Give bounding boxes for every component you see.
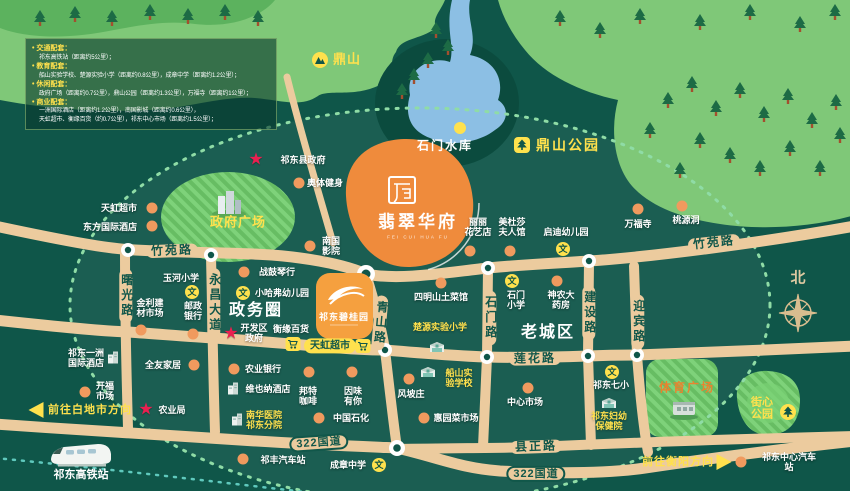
project-pinyin: FEI CUI HUA FU: [387, 234, 449, 239]
chuyuan-primary-school-school-icon: [428, 340, 446, 354]
legend-box: 交通配套：祁东高铁站（距离约5公里）；教育配套：船山实验学校、楚源实验小学（距离…: [25, 38, 277, 130]
nanhua-hospital: 南华医院 祁东分院: [246, 410, 282, 430]
aoti-fitness-dot-icon: [294, 178, 305, 189]
zhengfu-square: 政府广场: [210, 216, 266, 231]
qifeng-bus-station-dot-icon: [238, 454, 249, 465]
harvard-kindergarten: 小哈弗幼儿园: [255, 288, 309, 298]
fengpo-village: 风坡庄: [397, 389, 424, 399]
nanguo-cinema-dot-icon: [305, 241, 316, 252]
lianhua-road-label: 莲花路: [509, 352, 561, 366]
huiyuan-food-market: 惠园菜市场: [433, 413, 478, 423]
fuyou-health-hospital-school-icon: [600, 396, 618, 410]
shimen-reservoir-ydot-icon: [454, 122, 466, 134]
vienna-hotel-bldg-icon: [227, 382, 239, 395]
dingshan-hill-mountain-icon: [312, 52, 328, 68]
fengpo-village-dot-icon: [404, 374, 415, 385]
qidi-kindergarten: 启迪幼儿园: [543, 227, 588, 237]
shimen-primary-school-wen-icon: 文: [505, 274, 519, 288]
wanfu-temple-dot-icon: [633, 204, 644, 215]
chuyuan-primary-school: 楚源实验小学: [413, 322, 467, 332]
hengyuan-store: 衡缘百货: [273, 324, 309, 334]
shennong-pharmacy: 神农大 药房: [547, 290, 574, 310]
legend-line-5: 政府广场（距离约0.7公里），鼎山公园（距离约1.3公里），万福寺（距离约1公里…: [32, 90, 270, 98]
shimen-reservoir: 石门水库: [417, 139, 473, 152]
stadium-icon: [670, 402, 698, 420]
legend-line-6: 商业配套：: [32, 98, 270, 108]
nanguo-cinema: 南国 影院: [322, 236, 340, 256]
bgy-project: 祁东碧桂园: [319, 312, 369, 322]
chuanshan-school-school-icon: [419, 365, 437, 379]
qidong-central-bus-station: 祁东中心汽车站: [759, 452, 820, 472]
nanhua-hospital-bldg-icon: [231, 413, 243, 426]
legend-line-0: 交通配套：: [32, 44, 270, 54]
dir-baidishi-arrow-icon: [29, 402, 44, 418]
kaifu-market: 开福 市场: [96, 381, 114, 401]
postal-bank-dot-icon: [188, 329, 199, 340]
legend-line-8: 天虹超市、衡缘百货（约0.7公里），祁东中心市场（距离约1.5公里）；: [32, 116, 270, 124]
center-market-dot-icon: [523, 383, 534, 394]
dir-baidishi-label: 前往白地市方向: [48, 404, 132, 416]
medusa-hall-dot-icon: [505, 246, 516, 257]
legend-line-1: 祁东高铁站（距离约5公里）；: [32, 54, 270, 62]
bangte-coffee: 邦特 咖啡: [299, 386, 317, 406]
project-name: 翡翠华府: [378, 212, 458, 231]
chengzhang-middle-school-wen-icon: 文: [372, 458, 386, 472]
dongfang-intl-hotel-dot-icon: [147, 221, 158, 232]
agri-bureau: 农业局: [158, 405, 185, 415]
yuhe-primary-school: 玉河小学: [163, 273, 199, 283]
lili-flower-shop: 丽丽 花艺店: [464, 217, 491, 237]
legend-line-7: 一洲国际酒店（距离约1.2公里），南国影城（距离约0.6公里），: [32, 107, 270, 115]
dongfang-intl-hotel: 东方国际酒店: [83, 222, 137, 232]
quanyou-home-dot-icon: [189, 360, 200, 371]
dingshan-park-park-icon: [514, 137, 530, 153]
bgy-project-box: [316, 273, 373, 339]
jiexin-park-treec-icon: [780, 404, 796, 420]
legend-line-3: 船山实验学校、楚源实验小学（距离约0.8公里），成章中学（距离约1.2公里）；: [32, 72, 270, 80]
location-map: 交通配套：祁东高铁站（距离约5公里）；教育配套：船山实验学校、楚源实验小学（距离…: [0, 0, 850, 491]
chengzhang-middle-school: 成章中学: [330, 460, 366, 470]
yinwei-cafe: 因味 有你: [344, 386, 362, 406]
dingshan-park: 鼎山公园: [536, 138, 600, 154]
qifeng-bus-station: 祁丰汽车站: [260, 455, 305, 465]
chuanshan-school: 船山实 验学校: [445, 368, 472, 388]
yongchang-avenue-label: 永昌大道: [207, 268, 220, 338]
kaifu-market-dot-icon: [80, 387, 91, 398]
shimen-road-label: 石门路: [483, 291, 496, 346]
legend-line-4: 休闲配套：: [32, 80, 270, 90]
jinli-materials-market: 金利建 材市场: [136, 298, 163, 318]
zhangu-piano-shop: 战鼓琴行: [259, 267, 295, 277]
aoti-fitness: 奥体健身: [307, 178, 343, 188]
zhuyuan-road-west-label: 竹苑路: [146, 243, 198, 258]
shuguang-road-label: 曙光路: [119, 269, 132, 324]
siming-restaurant: 四明山土菜馆: [414, 292, 468, 302]
jiexin-park: 街心 公园: [751, 397, 773, 422]
qidong-hsr-station: 祁东高铁站: [54, 469, 109, 481]
vienna-hotel: 维也纳酒店: [245, 384, 290, 394]
qidong-7th-primary-wen-icon: 文: [605, 365, 619, 379]
center-market: 中心市场: [507, 397, 543, 407]
agri-bank: 农业银行: [245, 364, 281, 374]
quanyou-home: 全友家居: [145, 360, 181, 370]
dingshan-hill: 鼎山: [333, 53, 361, 68]
jianshe-road-label: 建设路: [582, 286, 595, 341]
shimen-primary-school: 石门 小学: [507, 290, 525, 310]
kaifaqu-gov: 开发区 政府: [240, 323, 267, 343]
tianhong-market-center: 天虹超市: [304, 338, 356, 353]
qidong-7th-primary: 祁东七小: [593, 380, 629, 390]
jinli-materials-market-dot-icon: [136, 325, 147, 336]
zhengwu-circle: 政务圈: [229, 302, 283, 320]
sinopec: 中国石化: [333, 413, 369, 423]
tianhong-market-west-dot-icon: [147, 203, 158, 214]
qidong-county-gov-star-icon: ★: [248, 152, 263, 169]
taoyuan-cave-dot-icon: [677, 201, 688, 212]
yuhe-primary-school-wen-icon: 文: [185, 285, 199, 299]
harvard-kindergarten-wen-icon: 文: [236, 286, 250, 300]
siming-restaurant-dot-icon: [436, 278, 447, 289]
zhangu-piano-shop-dot-icon: [239, 267, 250, 278]
sinopec-dot-icon: [314, 413, 325, 424]
qidong-central-bus-station-dot-icon: [736, 457, 747, 468]
sports-square: 体育广场: [659, 381, 715, 394]
laochengqu-area: 老城区: [521, 324, 575, 342]
legend-line-2: 教育配套：: [32, 62, 270, 72]
qidong-county-gov: 祁东县政府: [280, 155, 325, 165]
bangte-coffee-dot-icon: [304, 367, 315, 378]
xianzheng-road-label: 县正路: [510, 439, 562, 454]
tianhong-market-west: 天虹超市: [101, 203, 137, 213]
yizhou-intl-hotel: 祁东一洲 国际酒店: [68, 348, 104, 368]
sports-square-area: [646, 359, 718, 437]
cart-icon-right-cart-icon: [356, 339, 371, 353]
dir-hengyang-label: 前往衡阳方向: [642, 456, 714, 468]
fuyou-health-hospital: 祁东妇幼 保健院: [591, 411, 627, 431]
taoyuan-cave: 桃源洞: [672, 215, 699, 225]
cart-icon-left-cart-icon: [286, 337, 301, 351]
huiyuan-food-market-dot-icon: [419, 413, 430, 424]
dir-hengyang-arrow-icon: [717, 454, 732, 470]
kaifaqu-gov-star-icon: ★: [223, 326, 238, 343]
yingbin-road-label: 迎宾路: [631, 295, 644, 350]
qidi-kindergarten-wen-icon: 文: [556, 242, 570, 256]
yinwei-cafe-dot-icon: [347, 367, 358, 378]
agri-bank-dot-icon: [229, 364, 240, 375]
medusa-hall: 美杜莎 夫人馆: [498, 217, 525, 237]
lili-flower-shop-dot-icon: [465, 246, 476, 257]
wanfu-temple: 万福寺: [624, 219, 651, 229]
yizhou-intl-hotel-bldg-icon: [107, 351, 119, 364]
shennong-pharmacy-dot-icon: [552, 276, 563, 287]
compass-north-label: 北: [790, 271, 805, 288]
agri-bureau-star-icon: ★: [138, 402, 153, 419]
postal-bank: 邮政 银行: [184, 301, 202, 321]
qidong-hsr-station-train-icon: [50, 442, 112, 468]
g322-east-label: 322国道: [506, 466, 565, 482]
